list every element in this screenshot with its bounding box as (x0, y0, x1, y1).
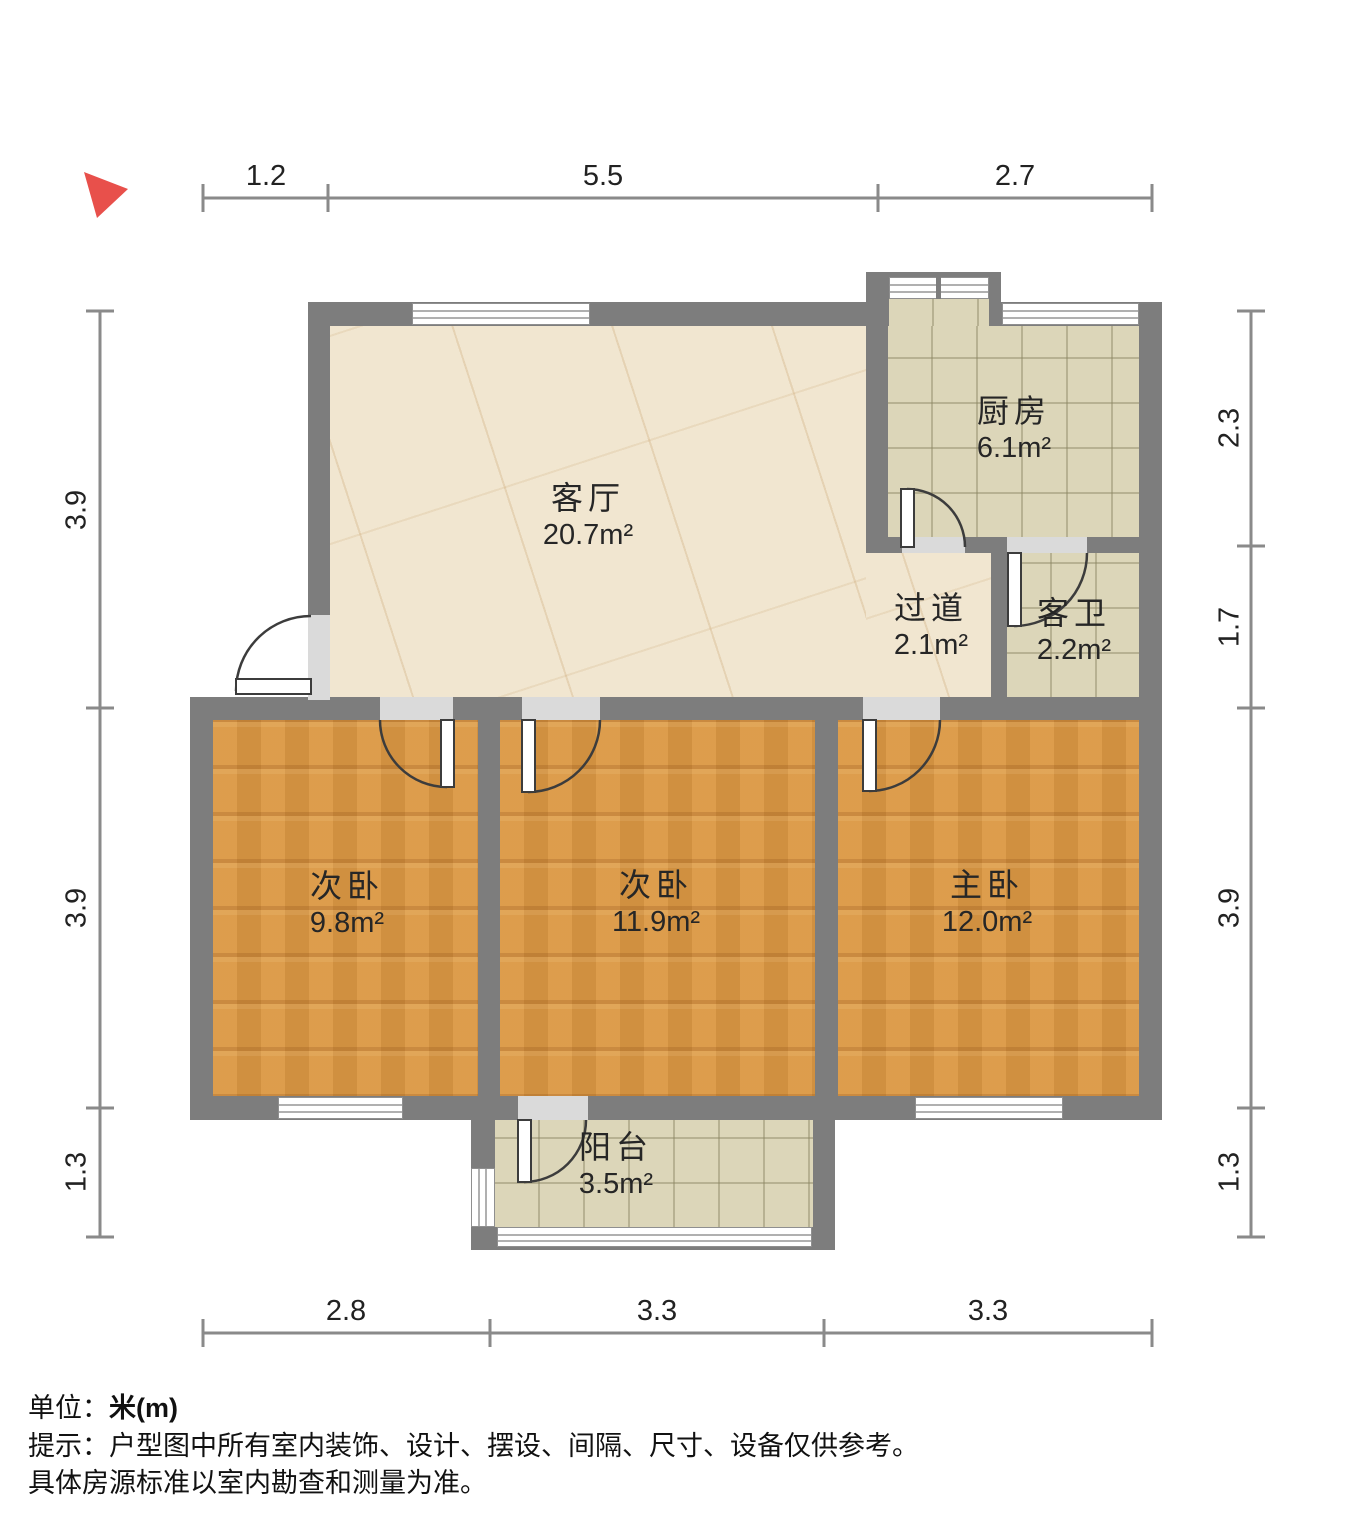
room-area: 11.9m² (612, 904, 700, 941)
dim-top-1: 1.2 (246, 160, 286, 193)
footer-tip-line1: 提示：户型图中所有室内装饰、设计、摆设、间隔、尺寸、设备仅供参考。 (28, 1424, 919, 1463)
bed2-master-wall (815, 720, 838, 1096)
master-door-threshold (863, 697, 940, 720)
dim-right-4: 1.3 (1214, 1152, 1247, 1192)
room-label-living: 客厅 20.7m² (543, 480, 633, 554)
dim-left-1: 3.9 (61, 490, 94, 530)
room-area: 9.8m² (310, 905, 384, 942)
floor-plan: 客厅 20.7m² 厨房 6.1m² 过道 2.1m² 客卫 2.2m² 次卧 … (0, 0, 1356, 1526)
room-name: 阳台 (579, 1129, 653, 1166)
kitchen-door-threshold (902, 537, 965, 553)
unit-value: 米(m) (109, 1393, 178, 1423)
north-arrow-icon (84, 172, 128, 218)
dim-bottom-1: 2.8 (326, 1295, 366, 1328)
entry-door-leaf (236, 679, 311, 694)
room-area: 20.7m² (543, 517, 633, 554)
room-area: 3.5m² (579, 1166, 653, 1203)
balcony-window (497, 1227, 812, 1247)
room-name: 过道 (894, 590, 968, 627)
kitchen-window (1002, 303, 1139, 325)
dim-bottom-3: 3.3 (968, 1295, 1008, 1328)
footer-unit-line: 单位：米(m) (28, 1386, 178, 1425)
dim-top-2: 5.5 (583, 160, 623, 193)
room-label-balcony: 阳台 3.5m² (579, 1129, 653, 1203)
balcony-door-threshold (518, 1096, 588, 1120)
right-wall (1139, 302, 1162, 1120)
mid-wall (190, 697, 1162, 720)
room-area: 6.1m² (977, 430, 1051, 467)
living-room-window (412, 303, 590, 325)
dim-top-3: 2.7 (995, 160, 1035, 193)
bathroom-door-threshold (1007, 537, 1087, 553)
bedroom1-door-threshold (380, 697, 453, 720)
room-area: 2.1m² (894, 627, 968, 664)
dim-right-3: 3.9 (1214, 888, 1247, 928)
bedroom-left-wall (190, 697, 213, 1120)
kitchen-left-wall (866, 302, 888, 553)
room-name: 主卧 (942, 867, 1032, 904)
room-label-kitchen: 厨房 6.1m² (977, 393, 1051, 467)
room-area: 12.0m² (942, 904, 1032, 941)
master-bedroom-window (915, 1097, 1063, 1119)
room-name: 次卧 (612, 867, 700, 904)
room-label-bedroom1: 次卧 9.8m² (310, 868, 384, 942)
room-name: 厨房 (977, 393, 1051, 430)
bedroom1-window (278, 1097, 403, 1119)
room-label-bedroom2: 次卧 11.9m² (612, 867, 700, 941)
balcony-side-window (471, 1168, 495, 1227)
dim-right-2: 1.7 (1214, 607, 1247, 647)
entry-door-arc (236, 616, 311, 691)
room-name: 客厅 (543, 480, 633, 517)
unit-label: 单位： (28, 1393, 109, 1423)
dim-right-1: 2.3 (1214, 408, 1247, 448)
balcony-floor (495, 1120, 813, 1227)
kitchen-bay-window-divider (936, 277, 941, 299)
room-name: 客卫 (1037, 595, 1111, 632)
dim-bottom-2: 3.3 (637, 1295, 677, 1328)
entry-door-threshold (308, 615, 330, 700)
room-label-bathroom: 客卫 2.2m² (1037, 595, 1111, 669)
footer-tip-line2: 具体房源标准以室内勘查和测量为准。 (28, 1461, 487, 1500)
kitchen-bay-floor (889, 299, 989, 326)
bed1-bed2-wall (478, 720, 500, 1096)
room-name: 次卧 (310, 868, 384, 905)
hall-bath-wall (991, 553, 1007, 697)
bedroom2-door-threshold (522, 697, 600, 720)
room-label-hallway: 过道 2.1m² (894, 590, 968, 664)
room-area: 2.2m² (1037, 632, 1111, 669)
dim-left-3: 1.3 (61, 1152, 94, 1192)
dim-left-2: 3.9 (61, 888, 94, 928)
room-label-master: 主卧 12.0m² (942, 867, 1032, 941)
